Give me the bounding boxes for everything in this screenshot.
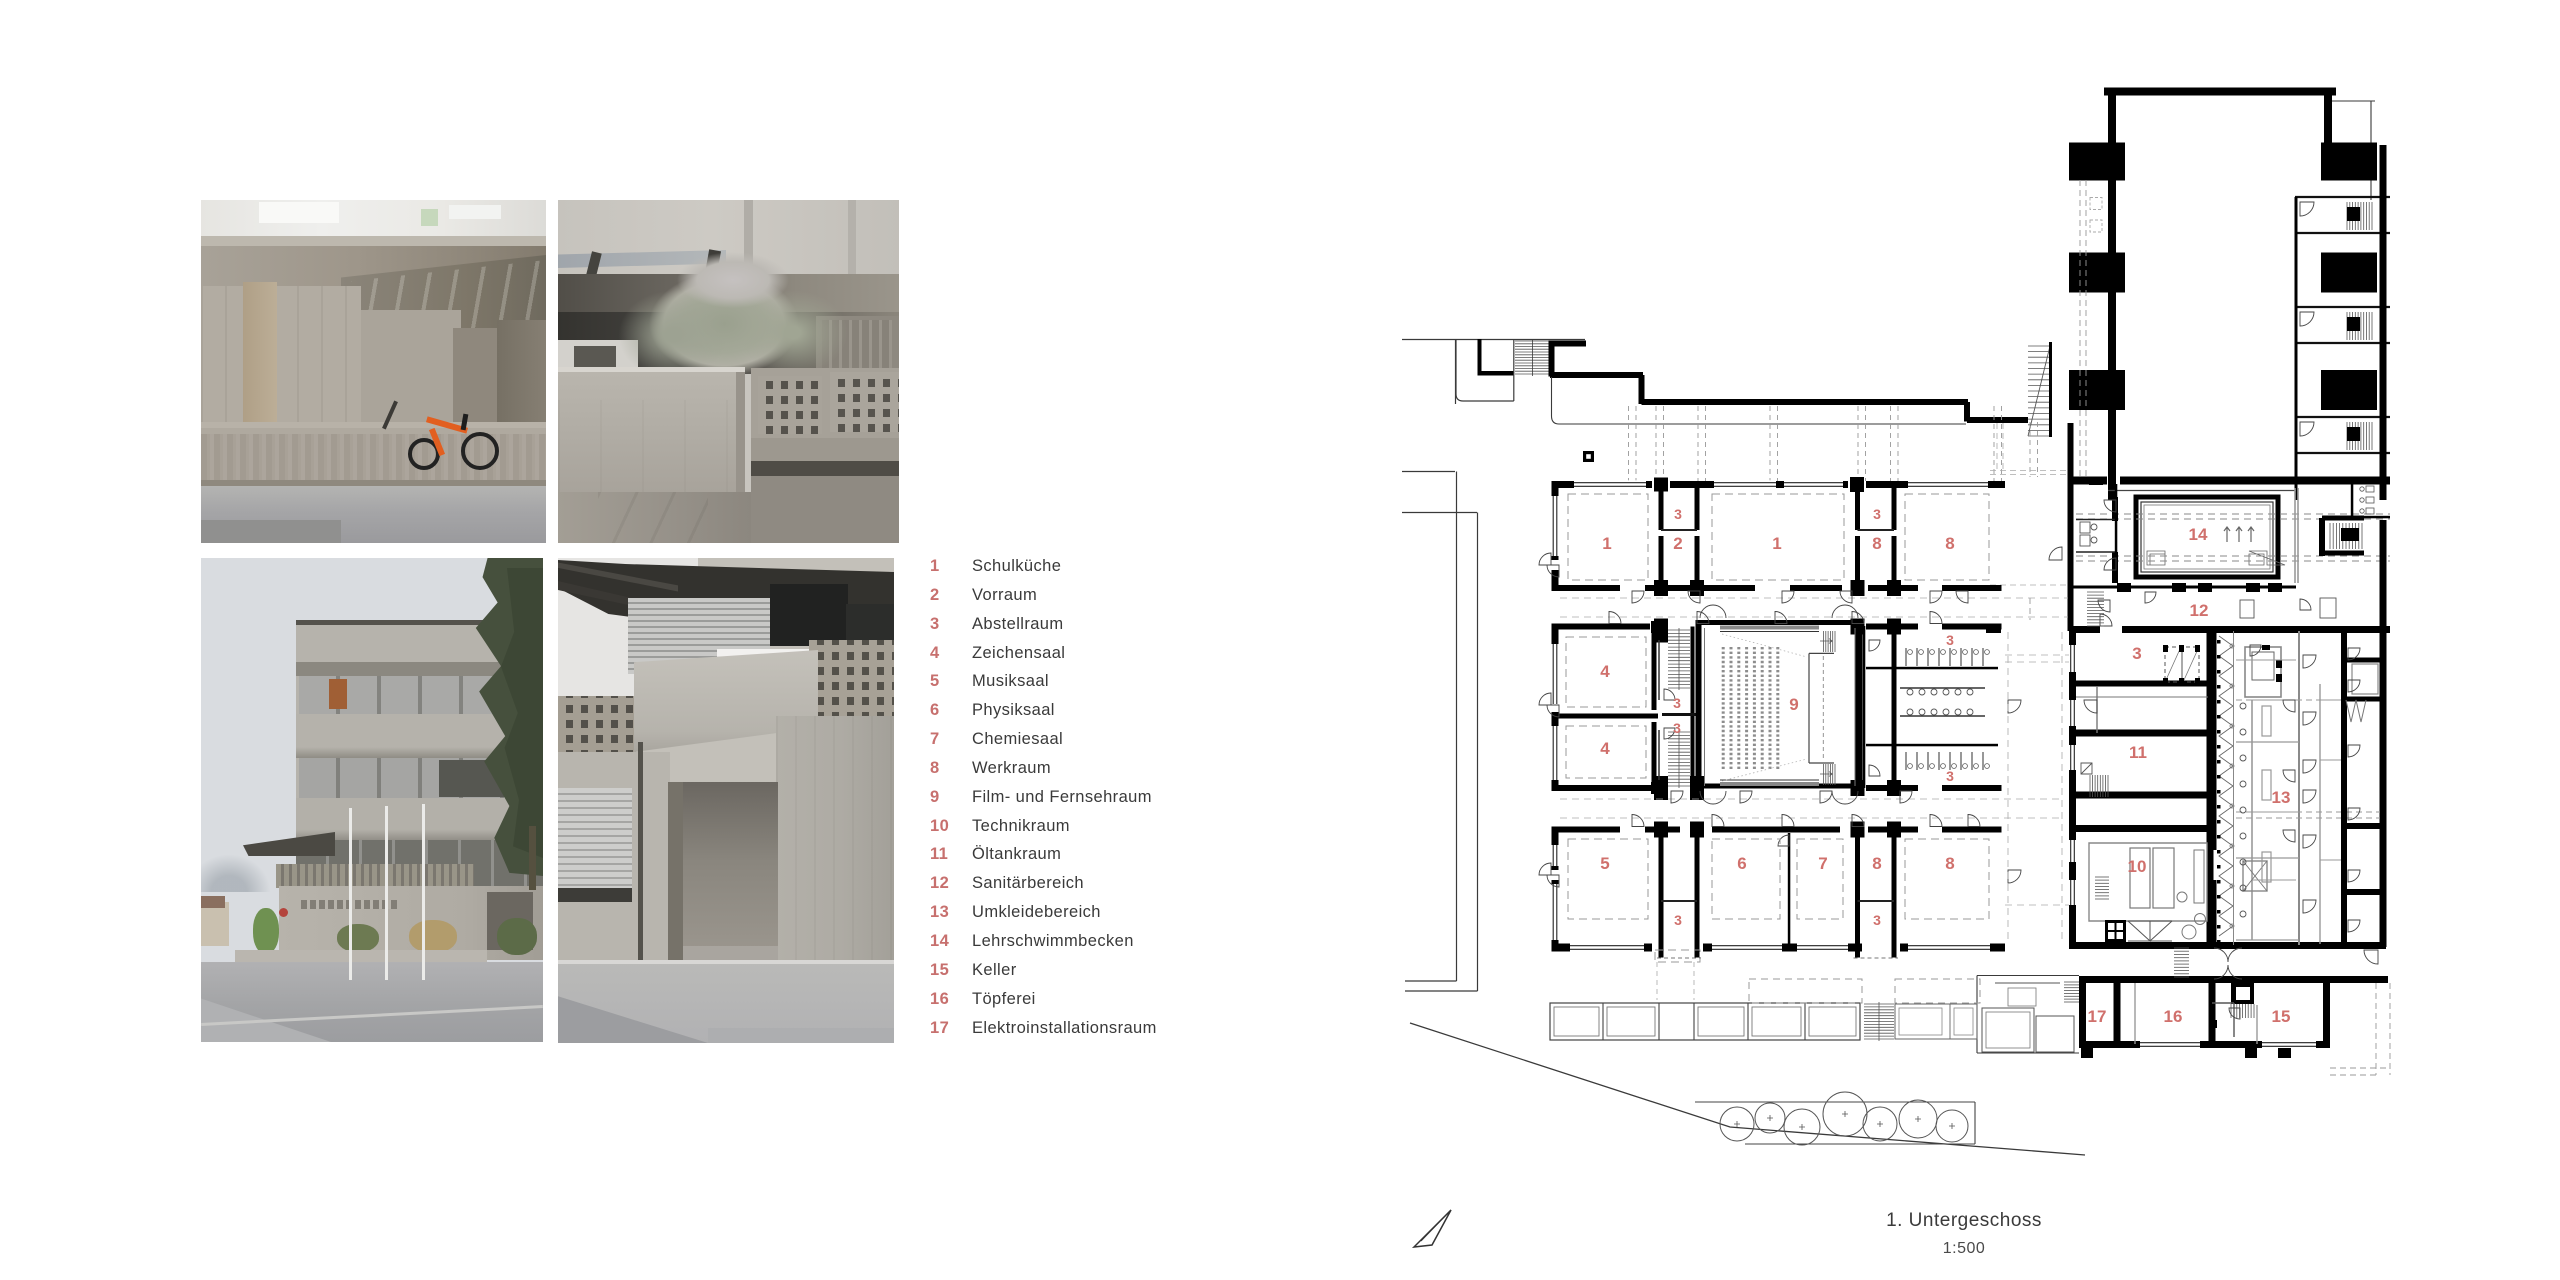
svg-text:6: 6 bbox=[1737, 854, 1746, 873]
svg-text:5: 5 bbox=[1600, 854, 1609, 873]
svg-text:4: 4 bbox=[1600, 662, 1610, 681]
svg-text:4: 4 bbox=[1600, 739, 1610, 758]
svg-text:13: 13 bbox=[2272, 788, 2291, 807]
svg-text:2: 2 bbox=[1673, 534, 1682, 553]
svg-text:9: 9 bbox=[1789, 695, 1798, 714]
svg-text:3: 3 bbox=[1946, 768, 1954, 784]
svg-text:3: 3 bbox=[1674, 506, 1682, 522]
svg-text:1: 1 bbox=[1602, 534, 1611, 553]
svg-text:8: 8 bbox=[1945, 534, 1954, 553]
svg-text:15: 15 bbox=[2272, 1007, 2291, 1026]
svg-text:17: 17 bbox=[2088, 1007, 2107, 1026]
svg-text:3: 3 bbox=[1873, 912, 1881, 928]
svg-text:3: 3 bbox=[1673, 695, 1681, 711]
svg-text:8: 8 bbox=[1872, 534, 1881, 553]
svg-text:1: 1 bbox=[1772, 534, 1781, 553]
svg-text:3: 3 bbox=[1674, 912, 1682, 928]
svg-text:11: 11 bbox=[2129, 743, 2147, 762]
svg-text:3: 3 bbox=[2132, 644, 2141, 663]
svg-text:14: 14 bbox=[2189, 525, 2208, 544]
svg-text:1:500: 1:500 bbox=[1943, 1240, 1986, 1257]
svg-text:1. Untergeschoss: 1. Untergeschoss bbox=[1886, 1210, 2042, 1231]
svg-text:10: 10 bbox=[2128, 857, 2147, 876]
svg-text:16: 16 bbox=[2164, 1007, 2183, 1026]
svg-text:3: 3 bbox=[1946, 632, 1954, 648]
svg-text:7: 7 bbox=[1818, 854, 1827, 873]
svg-text:12: 12 bbox=[2190, 601, 2209, 620]
svg-text:8: 8 bbox=[1945, 854, 1954, 873]
svg-text:3: 3 bbox=[1873, 506, 1881, 522]
svg-text:8: 8 bbox=[1872, 854, 1881, 873]
svg-text:3: 3 bbox=[1673, 720, 1681, 736]
